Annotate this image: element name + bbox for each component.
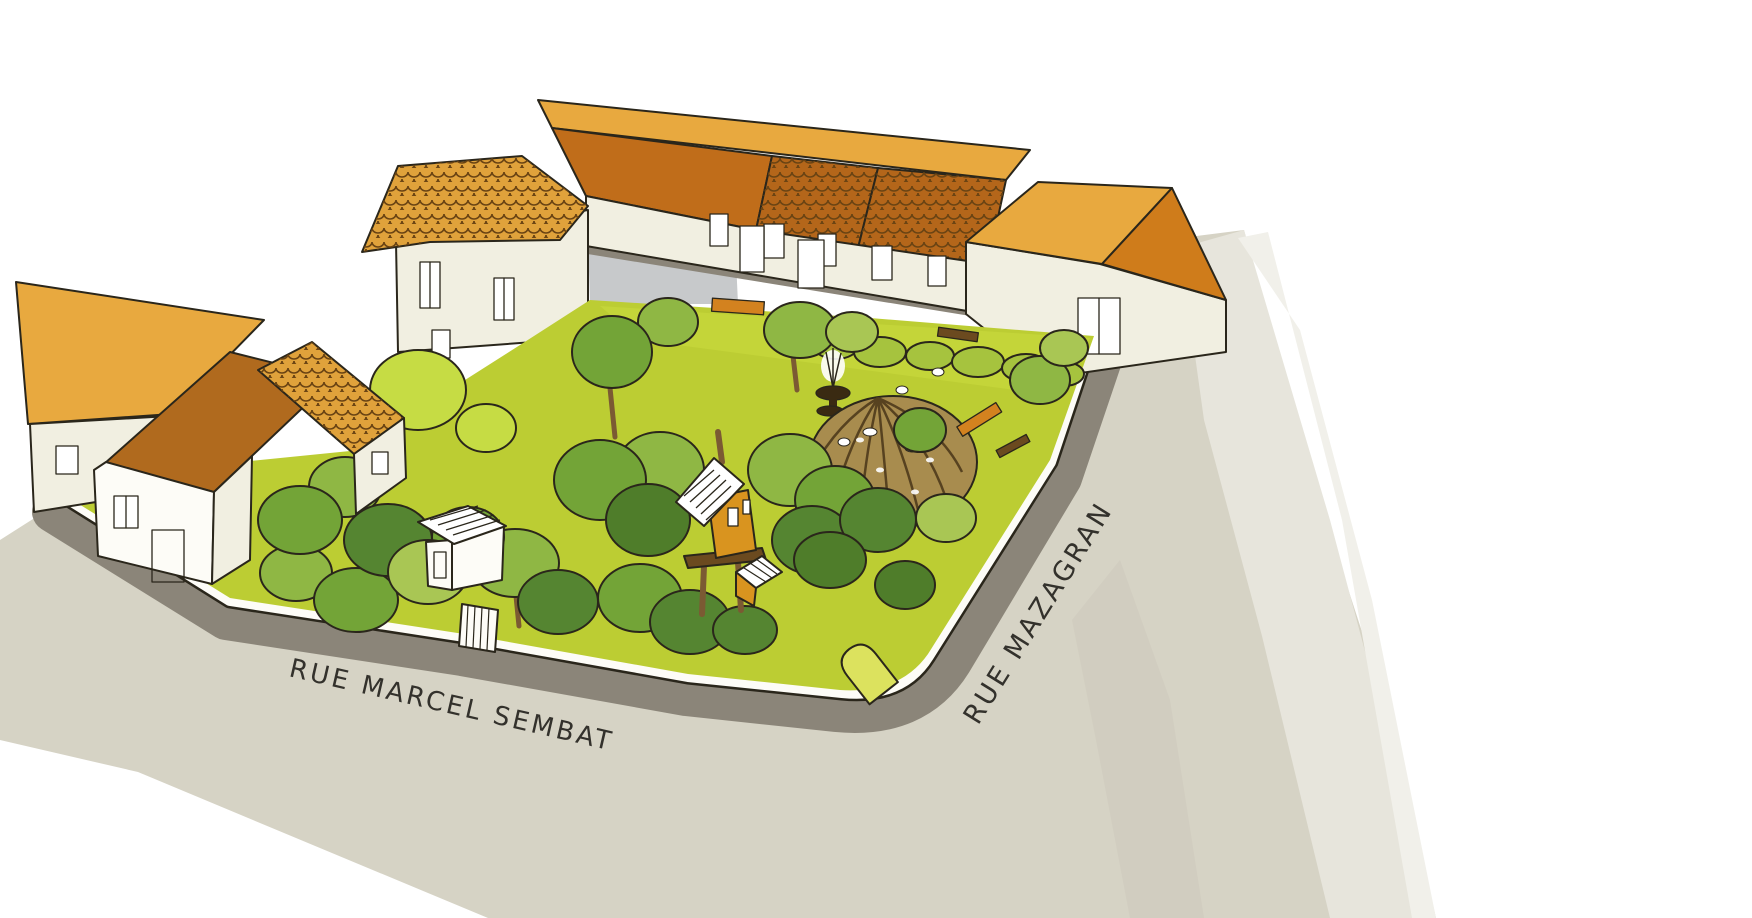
site-sketch: RUE MARCEL SEMBAT RUE MAZAGRAN bbox=[0, 0, 1752, 918]
tree bbox=[572, 316, 652, 388]
window bbox=[928, 256, 946, 286]
lawn-accent bbox=[838, 438, 850, 446]
tree bbox=[713, 606, 777, 654]
window bbox=[56, 446, 78, 474]
tree bbox=[875, 561, 935, 609]
window bbox=[710, 214, 728, 246]
dome-speckle bbox=[926, 458, 934, 463]
treehouse-window bbox=[743, 500, 750, 514]
tree bbox=[794, 532, 866, 588]
hedge bbox=[906, 342, 954, 370]
tree bbox=[894, 408, 946, 452]
site-sketch-canvas: RUE MARCEL SEMBAT RUE MAZAGRAN bbox=[0, 0, 1752, 918]
dome-speckle bbox=[911, 490, 919, 495]
window bbox=[372, 452, 388, 474]
dome-speckle bbox=[876, 468, 884, 473]
bench bbox=[712, 298, 765, 315]
tree bbox=[258, 486, 342, 554]
garden-shed bbox=[418, 506, 506, 590]
door bbox=[740, 226, 764, 272]
tree bbox=[606, 484, 690, 556]
garden-gate bbox=[459, 604, 498, 652]
shed-front bbox=[426, 540, 452, 590]
lawn-accent bbox=[863, 428, 877, 436]
hedge bbox=[952, 347, 1004, 377]
treehouse-branch bbox=[718, 432, 722, 462]
tree bbox=[1040, 330, 1088, 366]
tree bbox=[456, 404, 516, 452]
tree bbox=[916, 494, 976, 542]
window bbox=[872, 246, 892, 280]
fountain-bowl bbox=[816, 386, 850, 400]
gate-panel bbox=[459, 604, 498, 652]
treehouse-window bbox=[728, 508, 738, 526]
tree bbox=[518, 570, 598, 634]
lawn-accent bbox=[896, 386, 908, 394]
door bbox=[798, 240, 824, 288]
dome-speckle bbox=[856, 438, 864, 443]
window bbox=[764, 224, 784, 258]
tree bbox=[826, 312, 878, 352]
treehouse-post bbox=[702, 566, 704, 614]
lawn-accent bbox=[932, 368, 944, 376]
tree bbox=[314, 568, 398, 632]
